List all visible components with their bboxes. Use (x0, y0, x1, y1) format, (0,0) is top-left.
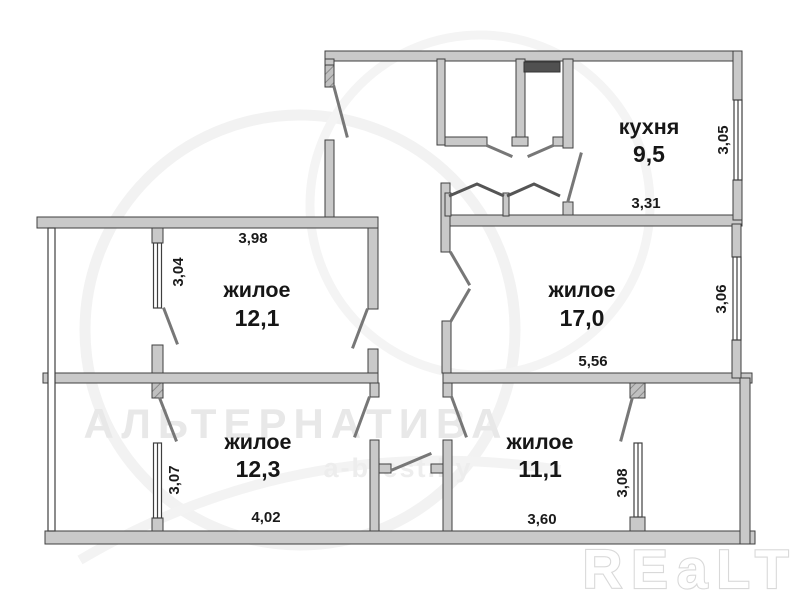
wall-segment (442, 321, 451, 373)
wall-segment (732, 224, 741, 257)
wall-segment (443, 383, 452, 397)
entrance-sidelight (325, 65, 334, 87)
room-label-living-12-1: жилое (223, 278, 291, 302)
door-leaf-12-1-balcony (164, 309, 177, 343)
room-area-living-12-3: 12,3 (236, 456, 281, 482)
window-kitchen (734, 100, 742, 180)
floorplan-page: АЛЬТЕРНАТИВА a-brest.by (0, 0, 800, 599)
wall-segment (370, 383, 379, 397)
wall-segment (325, 51, 742, 61)
wall-stub-hatch (152, 383, 163, 398)
room-label-living-17-0: жилое (548, 278, 616, 302)
room-label-kitchen: кухня (619, 115, 679, 139)
vent-shaft (524, 62, 560, 72)
wall-stub-hatch (630, 383, 645, 398)
wall-segment (152, 518, 163, 531)
wall-segment (368, 228, 378, 309)
wall-segment (443, 373, 752, 383)
door-leaf-wc (488, 146, 511, 156)
dim-living-11-1-width: 3,60 (527, 511, 556, 528)
wall-segment (325, 140, 334, 220)
accordion-door (507, 184, 560, 196)
wall-segment (733, 180, 742, 220)
window-living-17-0 (733, 257, 741, 340)
wall-segment (437, 59, 445, 145)
floorplan-svg: АЛЬТЕРНАТИВА a-brest.by (0, 0, 800, 599)
dim-kitchen-width: 3,31 (631, 195, 660, 212)
door-leaf-11-1-balcony (621, 399, 632, 440)
door-leaf-17-0-b (451, 290, 469, 321)
wall-segment (379, 464, 391, 473)
window-living-12-1 (154, 243, 162, 308)
dim-living-12-1-depth: 3,04 (170, 257, 187, 287)
dim-living-11-1-depth: 3,08 (614, 468, 631, 497)
door-leaf-kitchen (568, 154, 581, 201)
room-area-kitchen: 9,5 (633, 141, 665, 167)
door-leaf-bath (529, 146, 552, 156)
wall-segment (563, 59, 573, 148)
wall-segment (630, 517, 645, 531)
dim-living-17-0-depth: 3,06 (713, 284, 730, 313)
room-label-living-12-3: жилое (224, 430, 292, 454)
wall-segment (325, 59, 334, 65)
wall-segment (37, 217, 378, 228)
wall-segment (368, 349, 378, 375)
dim-living-12-3-depth: 3,07 (166, 465, 183, 494)
wall-segment (732, 340, 741, 378)
window-living-12-3 (154, 443, 162, 518)
wall-segment (443, 215, 742, 226)
wall-segment (443, 440, 452, 531)
wall-segment (152, 345, 163, 373)
dim-living-12-3-width: 4,02 (251, 509, 280, 526)
dim-living-17-0-width: 5,56 (578, 353, 607, 370)
window-living-11-1 (634, 443, 642, 517)
wall-segment (740, 378, 750, 544)
wall-segment (733, 51, 742, 100)
wall-segment (431, 464, 443, 473)
door-leaf-17-0-a (451, 253, 469, 284)
wall-segment (152, 228, 163, 243)
dim-living-12-1-width: 3,98 (238, 230, 267, 247)
watermark-logo: REaLT (582, 538, 797, 599)
room-label-living-11-1: жилое (506, 430, 574, 454)
balcony-outer-wall (48, 228, 55, 531)
wall-segment (512, 137, 528, 146)
dim-kitchen-depth: 3,05 (715, 125, 732, 154)
room-area-living-11-1: 11,1 (518, 456, 562, 482)
wall-segment (43, 373, 378, 383)
room-area-living-12-1: 12,1 (235, 305, 280, 331)
room-area-living-17-0: 17,0 (560, 305, 605, 331)
wall-segment (445, 137, 487, 146)
wall-segment (370, 440, 379, 531)
